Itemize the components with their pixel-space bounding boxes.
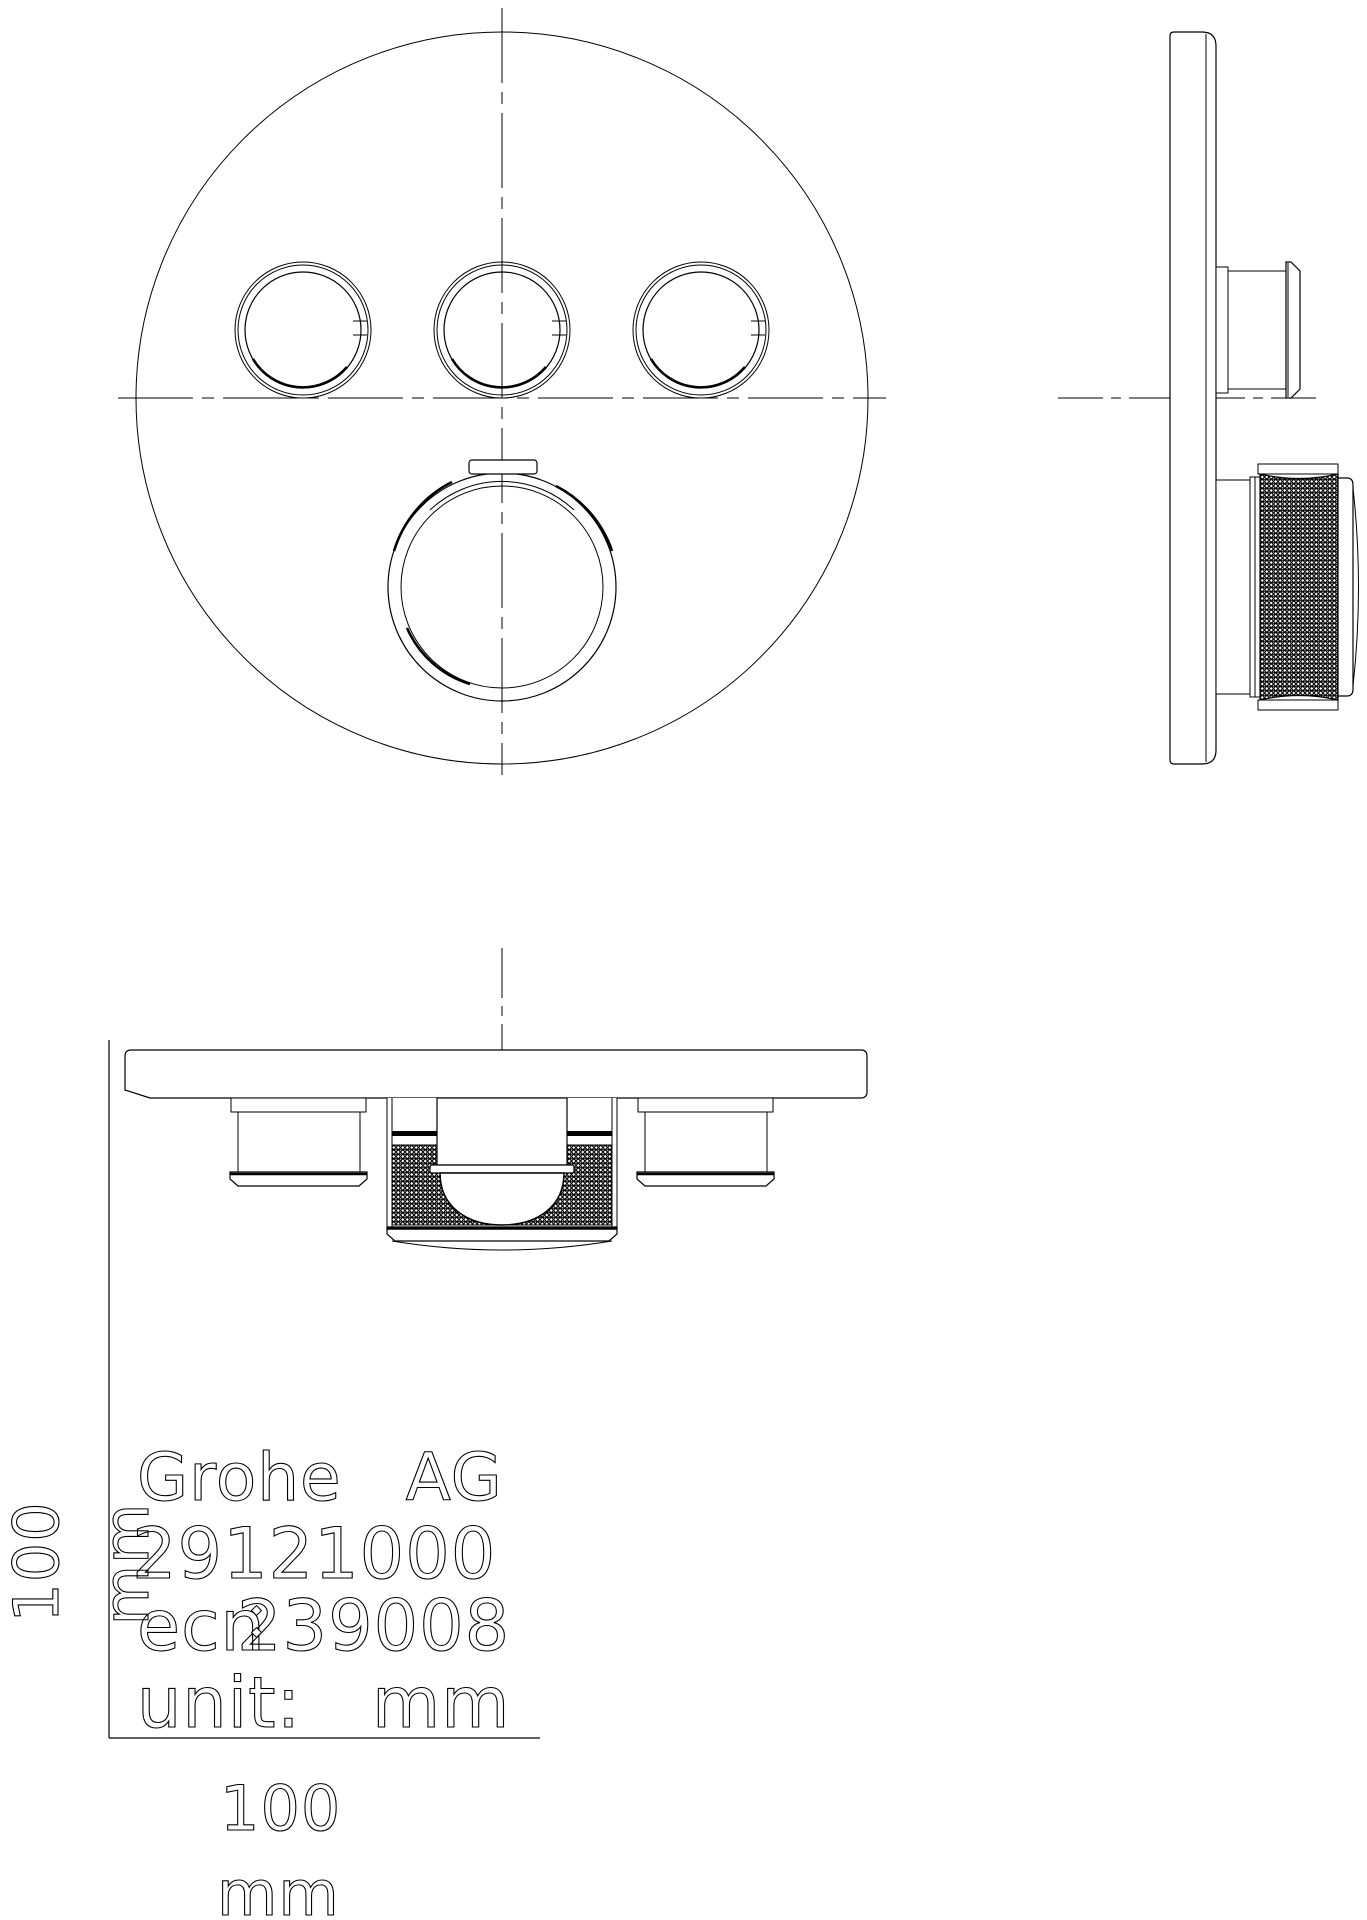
width-dimension-unit: mm: [217, 1857, 340, 1920]
unit-value-text: mm: [372, 1662, 510, 1744]
knurled-grip: [1260, 474, 1338, 700]
knob-bottom-arc: [392, 1241, 612, 1250]
unit-label-text: unit:: [137, 1662, 301, 1744]
knurled-knob-bottom: [387, 1098, 617, 1250]
bottom-view: [125, 948, 867, 1250]
knob-end-dome: [1353, 488, 1359, 686]
knob-stem: [437, 1098, 567, 1165]
technical-drawing: 100 mm Grohe AG 29121000 ecn 239008 unit…: [0, 0, 1367, 1920]
front-view: [118, 8, 886, 775]
height-dimension-value: 100: [0, 1501, 73, 1622]
button-left-bottom: [230, 1098, 367, 1186]
button-profile: [1216, 262, 1300, 398]
knob-top-tab: [469, 460, 537, 474]
button-right-bottom: [637, 1098, 774, 1186]
knurled-knob-profile: [1216, 464, 1359, 710]
plate-edge-bar: [125, 1050, 867, 1098]
product-number-text: 29121000: [132, 1513, 496, 1595]
button-left: [235, 262, 371, 398]
manufacturer-text: Grohe AG: [137, 1439, 503, 1516]
knob-stem-flange: [430, 1165, 574, 1173]
side-view: [1058, 32, 1359, 764]
width-dimension-value: 100: [220, 1772, 341, 1845]
button-right: [633, 262, 769, 398]
plate-profile: [1170, 32, 1216, 764]
ecn-number-text: 239008: [237, 1585, 510, 1667]
cad-drawing-page: 100 mm Grohe AG 29121000 ecn 239008 unit…: [0, 0, 1367, 1920]
